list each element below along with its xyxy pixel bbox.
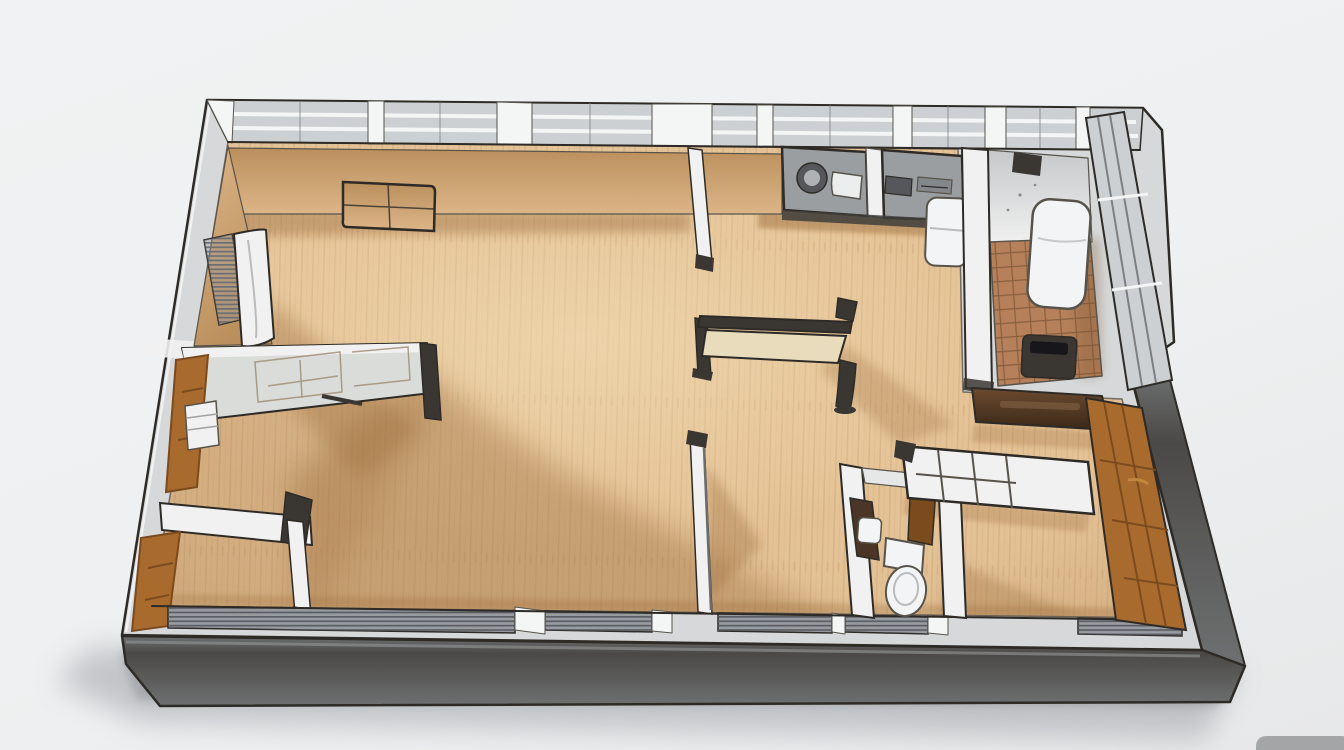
table-top-surface xyxy=(702,330,846,363)
table-right-bracket xyxy=(836,298,857,321)
floorplan-render xyxy=(0,0,1344,750)
table-right-foot xyxy=(834,406,856,414)
kitchen-sink xyxy=(832,172,863,199)
white-shelf xyxy=(185,401,219,450)
boiler xyxy=(1026,198,1091,310)
background xyxy=(1256,736,1344,750)
bin-opening xyxy=(1030,341,1069,355)
wash-basin xyxy=(857,517,882,544)
waste-bin xyxy=(1021,335,1077,380)
top-window-band xyxy=(207,100,1143,150)
corner-object-bottom-right xyxy=(1256,736,1344,750)
bath-west-wall xyxy=(962,148,992,390)
burner-inner xyxy=(804,170,820,186)
cooktop xyxy=(885,176,912,196)
wall-vent xyxy=(1012,152,1042,176)
floorplan-svg xyxy=(0,0,1344,750)
